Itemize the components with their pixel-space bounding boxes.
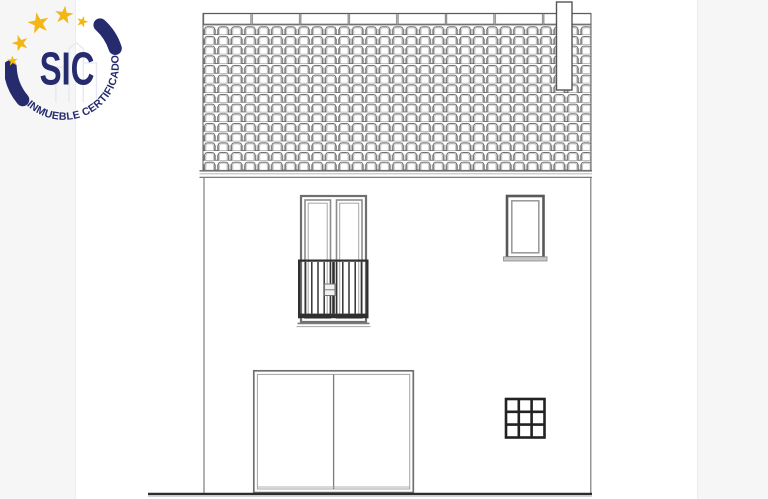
garage-door [254,371,413,493]
ground-line [148,494,592,497]
door-handle [325,284,336,296]
star-icon [75,14,89,28]
door-sill [297,323,371,326]
sic-certification-logo: INMUEBLE CERTIFICADO SIC [5,4,127,126]
ridge-caps [203,13,591,25]
eave-fascia [200,171,593,177]
star-icon [10,32,30,52]
badge-acronym: SIC [40,42,95,94]
tiled-roof [200,13,593,177]
glass-block-window [506,399,545,438]
screenshot-root: { "logo": { "acronym": "SIC", "tagline":… [0,0,768,499]
upper-window [504,196,548,261]
window-sill [504,257,548,261]
badge-arc-right [100,25,115,48]
badge-arc-left [10,67,23,100]
star-icon [54,4,75,24]
chimney [557,2,573,90]
roof-tiles [203,25,591,170]
star-icon [26,10,51,34]
